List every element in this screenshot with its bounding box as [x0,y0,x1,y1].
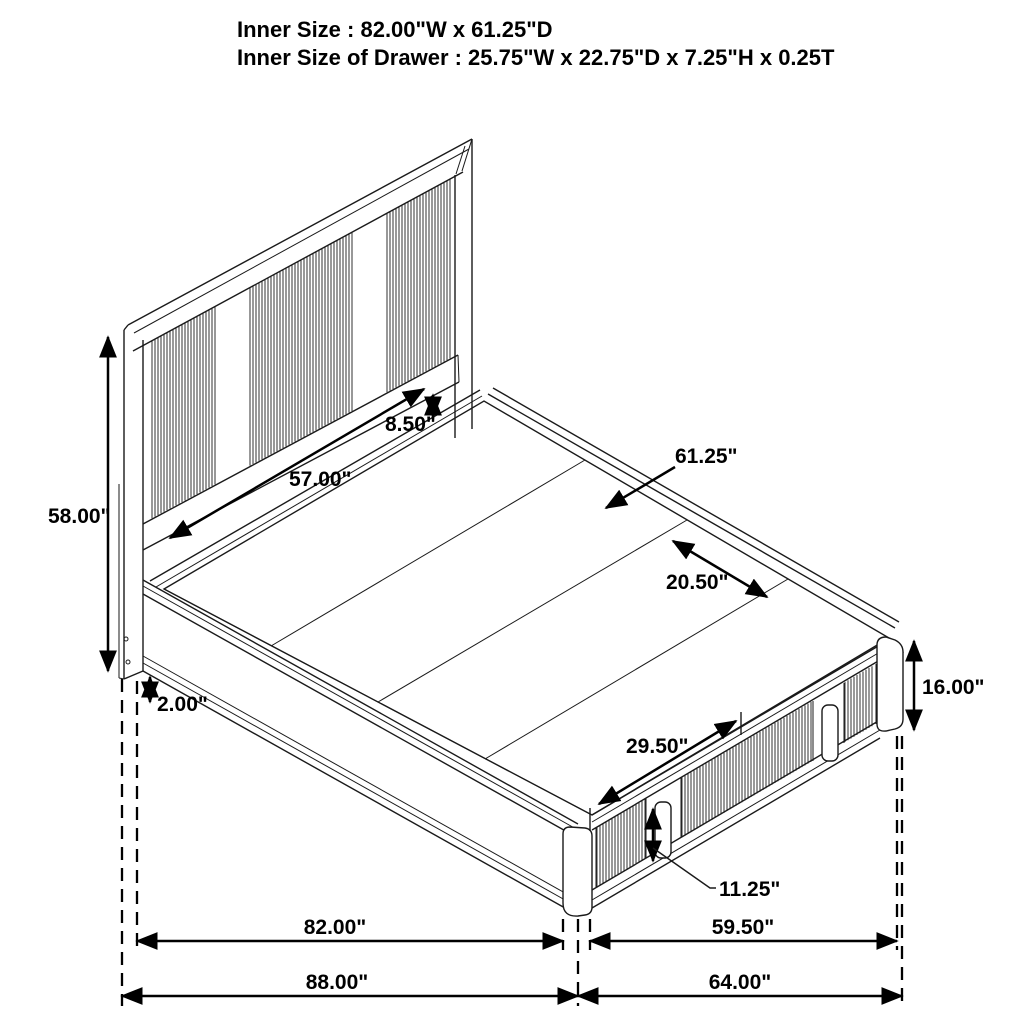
drawer-handle-icon [655,802,671,858]
bed-dimension-diagram: 58.00" 2.00" 8.50" 57.00" 61.25" 20.50" … [0,0,1024,1024]
dim-label-side-rail: 2.00" [157,693,208,716]
left-side-rail [143,580,592,908]
dim-label-headboard-height: 58.00" [48,505,111,528]
title-block: Inner Size : 82.00"W x 61.25"D Inner Siz… [237,17,835,70]
dim-label-inner-length: 82.00" [304,916,367,939]
front-left-leg [563,827,592,916]
front-right-leg [877,637,903,731]
dim-label-overall-width: 64.00" [709,971,772,994]
footboard-drawers [563,637,903,916]
diagram-canvas: 58.00" 2.00" 8.50" 57.00" 61.25" 20.50" … [0,0,1024,1024]
dim-label-overall-length: 88.00" [306,971,369,994]
title-inner-size-drawer: Inner Size of Drawer : 25.75"W x 22.75"D… [237,45,835,70]
dim-label-footboard-height: 16.00" [922,676,985,699]
dim-label-inner-depth: 61.25" [675,445,738,468]
dim-label-deck-panel: 20.50" [666,571,729,594]
dim-label-headboard-gap: 8.50" [385,413,436,436]
footboard-reeding [597,666,872,887]
dim-label-drawer-span: 29.50" [626,735,689,758]
dim-label-headboard-width: 57.00" [289,468,352,491]
extension-lines [122,679,902,1006]
dim-label-footboard-inner-width: 59.50" [712,916,775,939]
drawer-handle-icon [822,705,838,761]
dim-label-drawer-front-height: 11.25" [719,878,780,901]
headboard [119,139,472,679]
title-inner-size: Inner Size : 82.00"W x 61.25"D [237,17,553,42]
